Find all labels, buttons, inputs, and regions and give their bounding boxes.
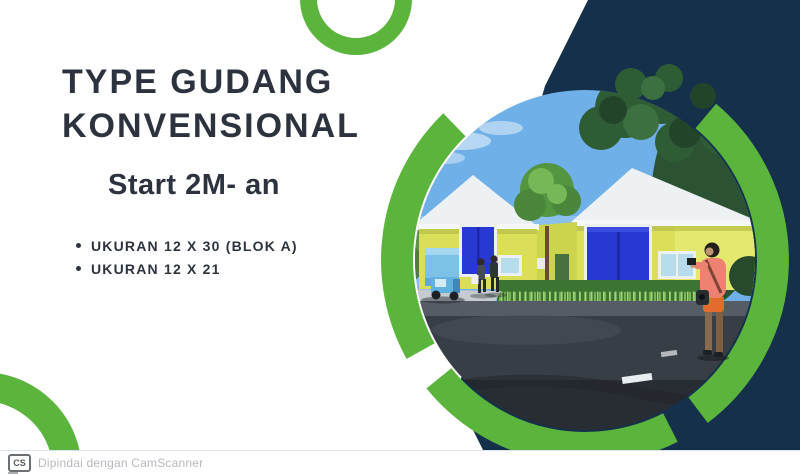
page-title-line2: KONVENSIONAL: [62, 104, 360, 148]
cloud: [479, 121, 523, 135]
warehouse-photo-circle: [361, 36, 800, 474]
page-title: TYPE GUDANG KONVENSIONAL: [62, 60, 360, 148]
camera: [687, 258, 696, 265]
white-bag: [472, 275, 479, 284]
spec-item: UKURAN 12 X 30 (BLOK A): [76, 234, 298, 257]
page-title-line1: TYPE GUDANG: [62, 60, 360, 104]
flyer-page: TYPE GUDANG KONVENSIONAL Start 2M- an UK…: [0, 0, 800, 474]
spec-item: UKURAN 12 X 21: [76, 257, 298, 280]
spec-text: UKURAN 12 X 21: [91, 261, 221, 277]
camscanner-logo-icon: CS: [8, 454, 31, 472]
camscanner-watermark-text: Dipindai dengan CamScanner: [38, 456, 203, 470]
scanner-footer-strip: CS Dipindai dengan CamScanner: [0, 450, 800, 474]
grass-row: [497, 280, 701, 302]
spec-list: UKURAN 12 X 30 (BLOK A) UKURAN 12 X 21: [76, 234, 298, 280]
bullet-dot: [76, 243, 81, 248]
price-text: Start 2M- an: [108, 167, 280, 203]
bullet-dot: [76, 266, 81, 271]
spec-text: UKURAN 12 X 30 (BLOK A): [91, 238, 298, 254]
camscanner-logo-text: CS: [13, 458, 26, 468]
